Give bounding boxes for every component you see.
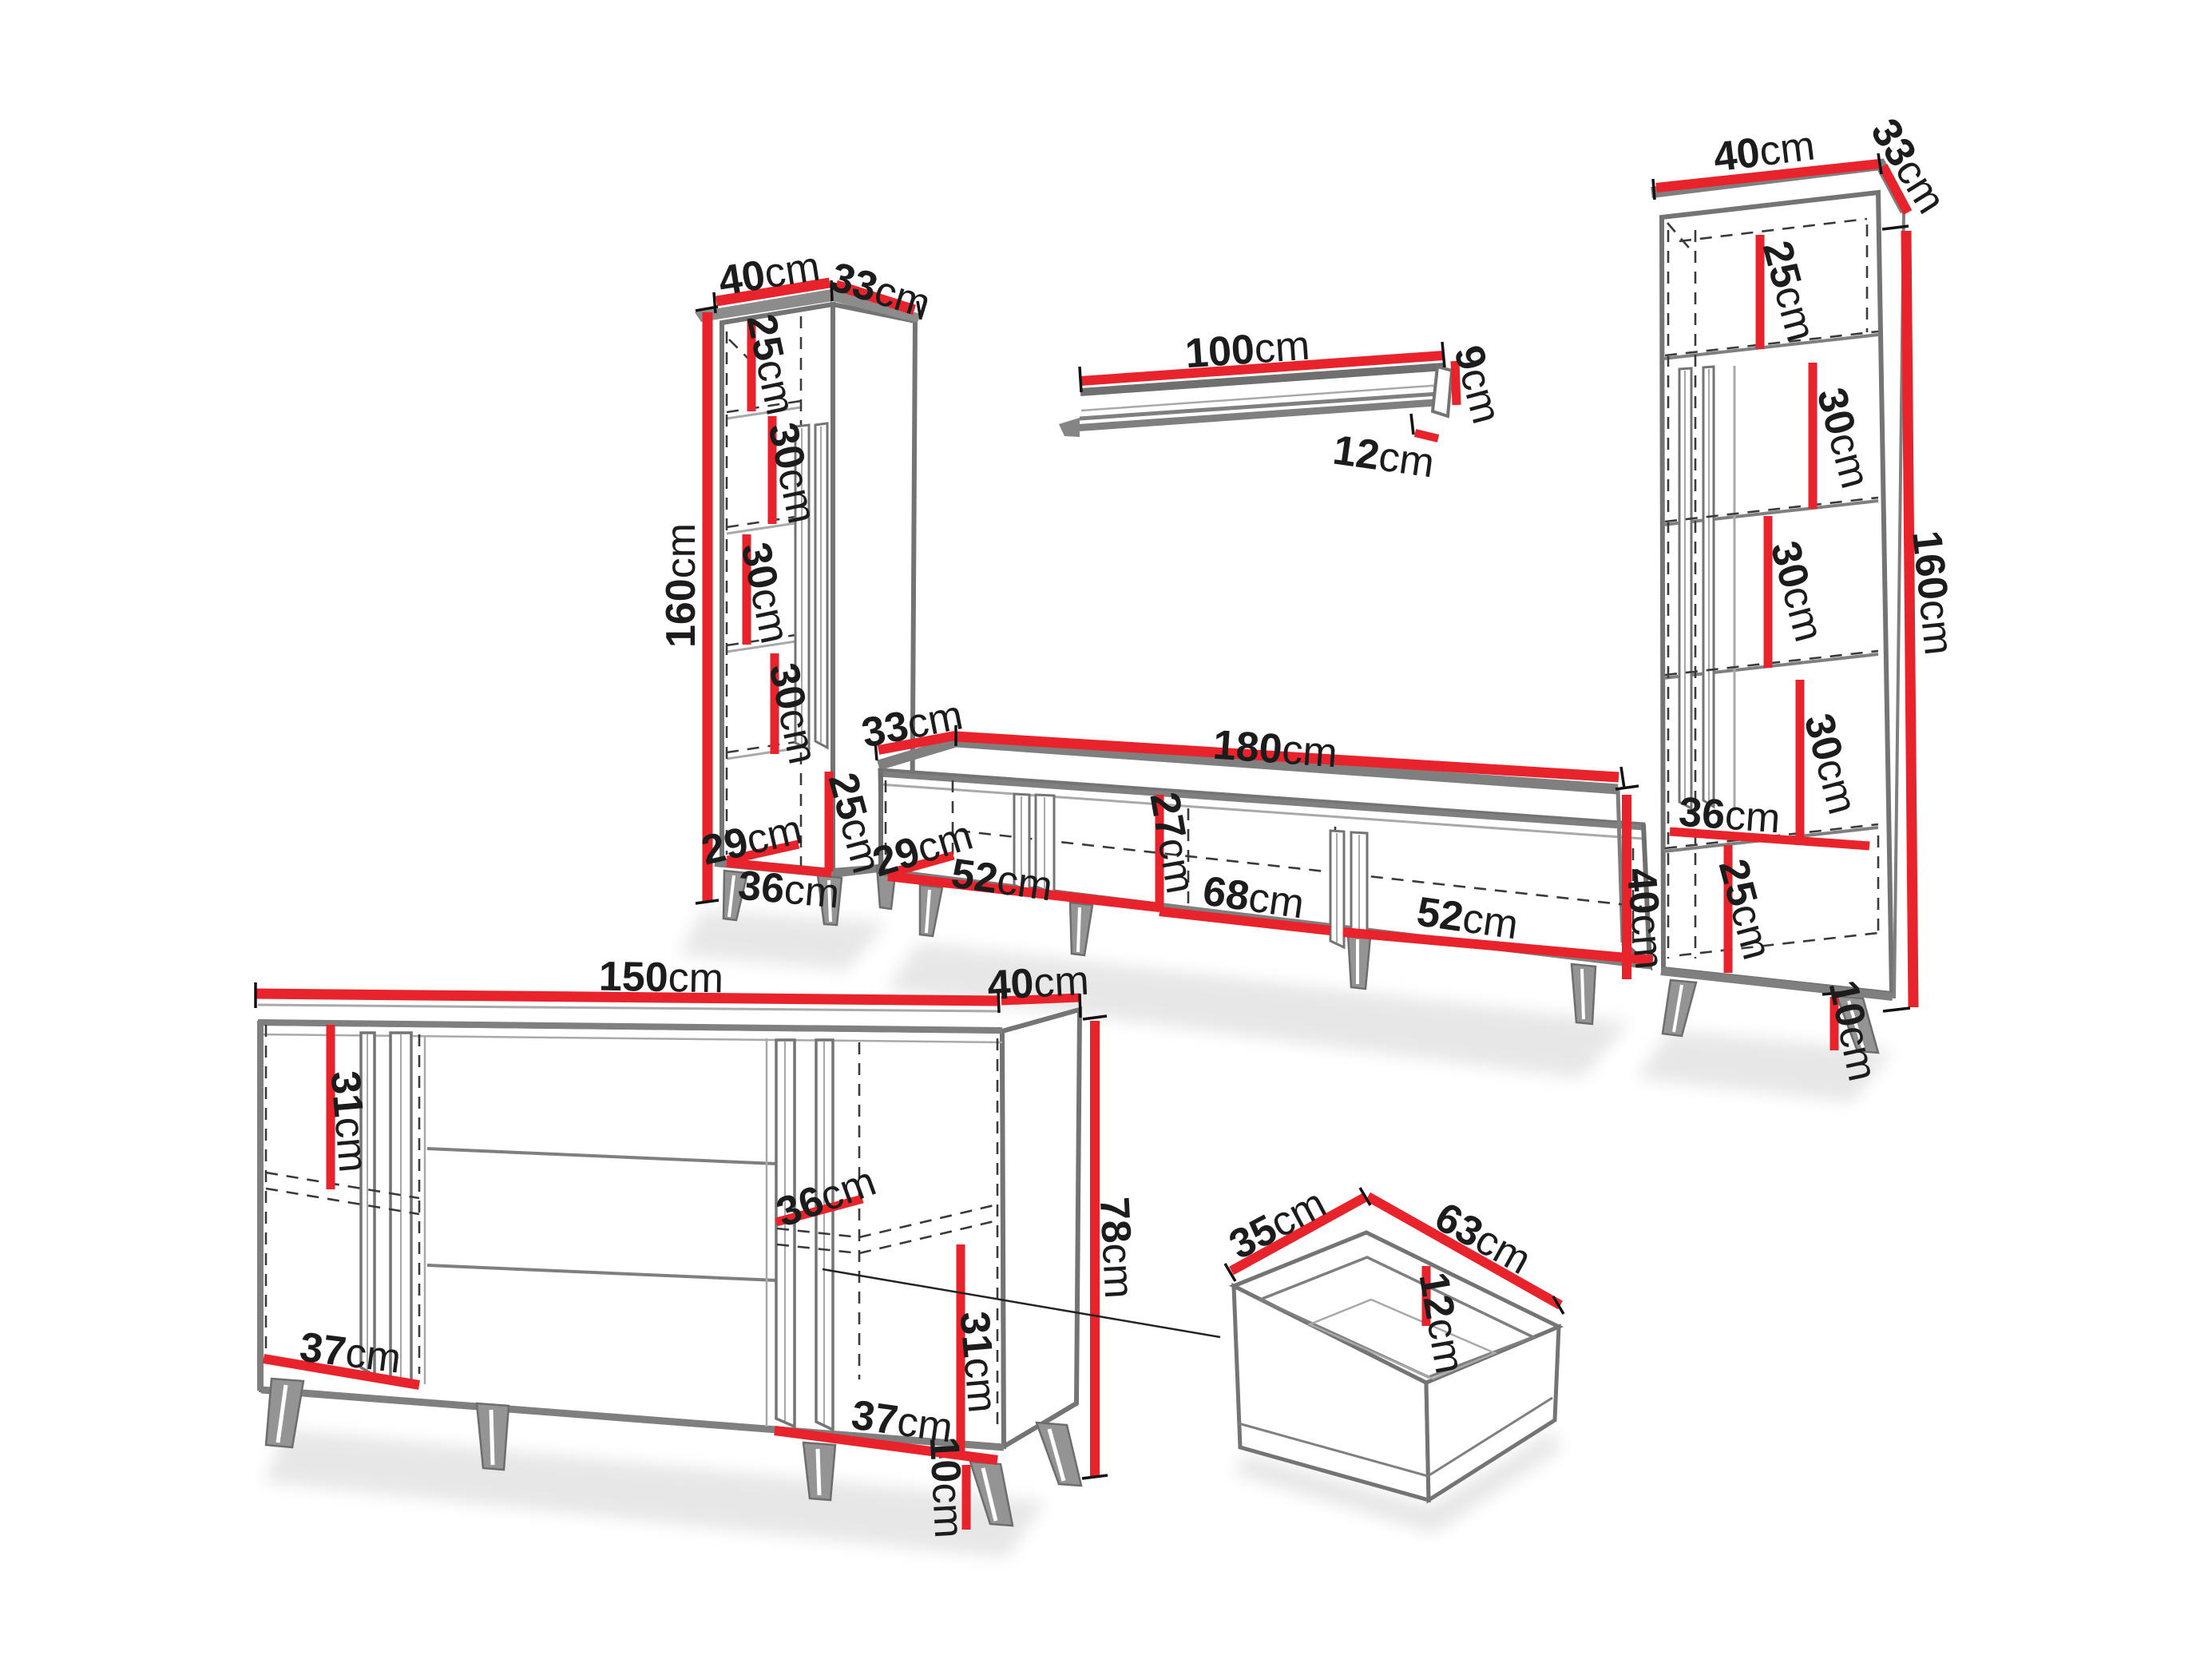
svg-text:40cm: 40cm — [986, 958, 1090, 1010]
svg-text:36cm: 36cm — [1677, 789, 1782, 843]
svg-text:36cm: 36cm — [736, 863, 842, 918]
svg-text:150cm: 150cm — [598, 954, 723, 1002]
svg-text:160cm: 160cm — [658, 523, 704, 648]
svg-text:100cm: 100cm — [1183, 323, 1311, 378]
svg-text:10cm: 10cm — [921, 1435, 973, 1539]
svg-text:31cm: 31cm — [322, 1069, 377, 1174]
svg-text:31cm: 31cm — [951, 1309, 1006, 1415]
svg-text:180cm: 180cm — [1211, 722, 1339, 777]
svg-text:78cm: 78cm — [1091, 1196, 1143, 1300]
